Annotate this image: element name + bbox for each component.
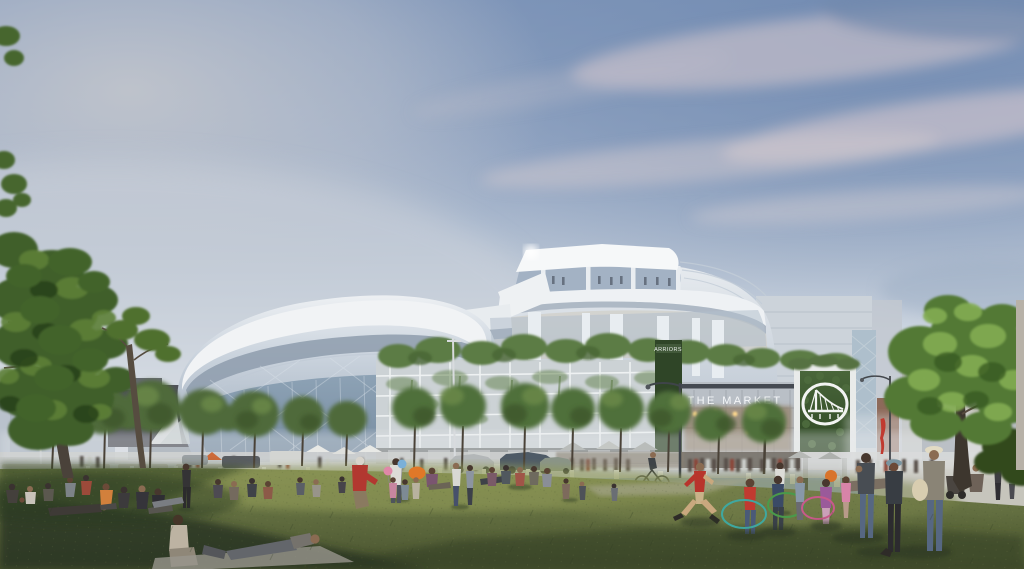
svg-text:ARRIORS: ARRIORS [654, 347, 682, 353]
